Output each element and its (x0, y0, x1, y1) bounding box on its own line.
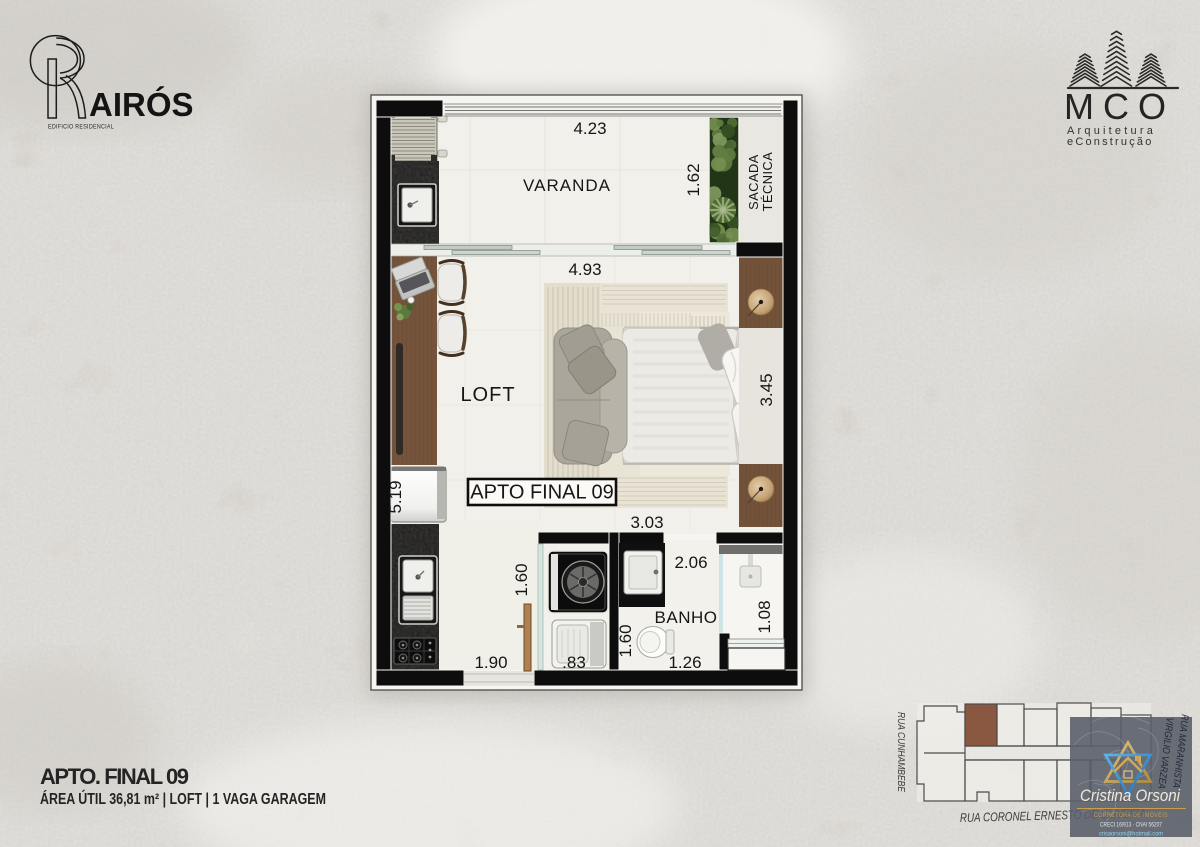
svg-text:1.08: 1.08 (755, 600, 774, 633)
svg-text:CORRETORA DE IMÓVEIS: CORRETORA DE IMÓVEIS (1094, 812, 1168, 819)
svg-text:3.45: 3.45 (757, 373, 776, 406)
svg-text:APTO. FINAL 09: APTO. FINAL 09 (40, 764, 189, 789)
svg-text:BANHO: BANHO (655, 608, 718, 627)
svg-text:2.06: 2.06 (674, 553, 707, 572)
svg-text:EDIFICIO RESIDENCIAL: EDIFICIO RESIDENCIAL (48, 124, 114, 131)
svg-text:1.90: 1.90 (474, 653, 507, 672)
svg-text:AIRÓS: AIRÓS (89, 86, 194, 123)
svg-text:5.19: 5.19 (386, 480, 405, 513)
svg-text:ÁREA ÚTIL 36,81 m² | LOFT | 1: ÁREA ÚTIL 36,81 m² | LOFT | 1 VAGA GARAG… (40, 790, 326, 808)
svg-text:4.93: 4.93 (568, 260, 601, 279)
svg-text:4.23: 4.23 (573, 119, 606, 138)
svg-text:1.26: 1.26 (668, 653, 701, 672)
svg-text:CRECI 16/913 · CNAI 56207: CRECI 16/913 · CNAI 56207 (1100, 823, 1163, 829)
svg-text:1.60: 1.60 (616, 624, 635, 657)
svg-text:APTO FINAL 09: APTO FINAL 09 (470, 482, 613, 504)
svg-text:RUA CUNHAMBEBE: RUA CUNHAMBEBE (895, 712, 907, 793)
svg-text:1.62: 1.62 (684, 163, 703, 196)
svg-text:eConstrução: eConstrução (1067, 136, 1154, 148)
svg-text:3.03: 3.03 (630, 513, 663, 532)
svg-text:MCO: MCO (1064, 86, 1175, 127)
svg-text:.83: .83 (562, 653, 586, 672)
svg-text:SACADA: SACADA (746, 154, 761, 210)
svg-text:TÉCNICA: TÉCNICA (760, 152, 775, 212)
svg-text:crisaorsoni@hotmail.com: crisaorsoni@hotmail.com (1099, 831, 1163, 838)
svg-text:LOFT: LOFT (460, 384, 515, 406)
svg-text:VARANDA: VARANDA (523, 176, 611, 195)
svg-text:1.60: 1.60 (512, 563, 531, 596)
